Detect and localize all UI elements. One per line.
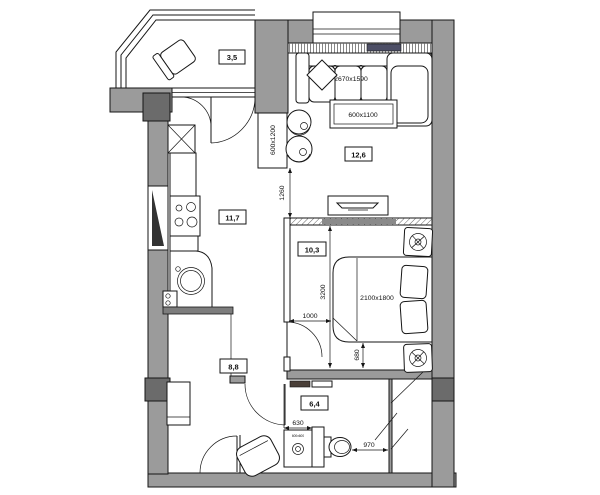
bathroom-right-wall [389, 379, 392, 473]
dim-630-label: 630 [292, 420, 304, 427]
left-wall-upper [148, 112, 168, 186]
dim-arrow [352, 448, 357, 452]
washing-machine: 600x600 [284, 430, 312, 467]
bathroom-cabinet [312, 427, 324, 467]
bedroom-left-wall-upper [284, 218, 290, 322]
tv-screen [337, 203, 378, 208]
shelf [312, 381, 332, 387]
washer-size-label: 600x600 [292, 434, 304, 438]
balcony-area-label: 3,5 [227, 53, 237, 62]
bed: 2100x1800 [333, 257, 432, 342]
pillow [400, 265, 428, 299]
sofa-seat [335, 66, 361, 102]
floor-plan-canvas: 3,5 11,7 [0, 0, 600, 495]
living-area-label: 12,6 [351, 151, 366, 160]
dim-arrow [307, 426, 312, 430]
partition-glass-strip [322, 219, 396, 224]
balcony: 3,5 [116, 10, 255, 97]
bed-size-label: 2100x1800 [360, 295, 394, 302]
dim-arrow [361, 343, 365, 348]
bathroom-area-label: 6,4 [309, 400, 320, 409]
dim-1000-label: 1000 [302, 313, 317, 320]
kitchen-area-label: 11,7 [225, 214, 239, 223]
radiator [367, 44, 401, 51]
hall-pouf [234, 433, 283, 479]
top-wall-right [400, 20, 432, 43]
coffee-table-size-label: 600x1100 [348, 112, 378, 119]
dim-1260-label: 1260 [279, 185, 286, 200]
counter-bar-edge [163, 307, 233, 314]
pouf-seat [234, 433, 283, 479]
nightstand-top [403, 227, 432, 256]
kitchen-counter-mid [170, 236, 198, 251]
dim-arrow [284, 426, 289, 430]
dim-arrow [361, 363, 365, 368]
top-wall-left-of-window [288, 20, 313, 43]
bathroom-top-wall-stub [230, 376, 245, 383]
coffee-table: 600x1100 [330, 100, 397, 128]
dim-arrow [383, 448, 388, 452]
dim-680-label: 680 [354, 349, 361, 361]
tv-stand [328, 196, 388, 215]
bedroom: 10,3 2100x1800 3200 [289, 226, 433, 387]
kitchen: 11,7 [163, 125, 246, 376]
hall-wardrobe [167, 382, 190, 425]
entry [375, 372, 423, 449]
nightstand-bottom [404, 344, 433, 373]
dim-1000: 1000 [289, 313, 331, 323]
bedroom-left-wall-lower [284, 357, 290, 371]
dim-arrow [328, 226, 332, 231]
dim-630: 630 [284, 420, 312, 430]
right-wall [432, 20, 454, 487]
sofa-armrest [296, 53, 309, 103]
hallway-area-label: 8,8 [228, 363, 238, 372]
kitchen-window [148, 186, 168, 250]
living-left-wall [255, 20, 288, 113]
kitchen-counter-upper [170, 153, 196, 196]
pillow [400, 300, 428, 334]
toilet-bowl [329, 438, 351, 457]
round-chair-2 [286, 136, 312, 162]
window-sill-hatch [288, 43, 432, 53]
sofa-seat [361, 66, 387, 102]
toilet [324, 437, 351, 457]
column-bottom-right [432, 378, 454, 401]
bathroom-door [245, 384, 285, 425]
window-casement-arc [181, 97, 211, 127]
window-bay [313, 12, 400, 43]
dim-970-label: 970 [363, 442, 375, 449]
bedroom-door [287, 322, 322, 357]
dim-3200-label: 3200 [320, 284, 327, 299]
dim-arrow [328, 363, 332, 368]
threshold-radiator [290, 381, 310, 387]
balcony-chair [152, 37, 197, 81]
door-swing-arc [211, 99, 255, 143]
sofa-size-label: 2670x1590 [334, 76, 368, 83]
door-swing-arc [245, 384, 285, 425]
door-swing-arc [200, 436, 237, 473]
switch-panel [163, 291, 177, 307]
dim-1260: 1260 [279, 168, 292, 218]
entry-door-swing-2 [391, 429, 408, 449]
dim-970: 970 [352, 442, 388, 452]
door-swing-arc [287, 322, 322, 357]
wardrobe-size-label: 600x1200 [270, 125, 277, 155]
column-top-left [143, 93, 170, 121]
bottom-wall [148, 473, 456, 487]
dim-680: 680 [354, 343, 365, 368]
stove [170, 196, 200, 236]
left-wall-lower [148, 250, 168, 474]
round-chair-1 [287, 110, 311, 135]
bedroom-area-label: 10,3 [305, 246, 320, 255]
floor-plan-drawing: 3,5 11,7 [0, 0, 600, 495]
wardrobe-600x1200: 600x1200 [258, 113, 287, 168]
entry-door-swing [375, 413, 397, 440]
column-bottom-left [145, 378, 170, 401]
hall-door [200, 436, 237, 473]
dim-arrow [288, 168, 292, 173]
dim-arrow [288, 213, 292, 218]
